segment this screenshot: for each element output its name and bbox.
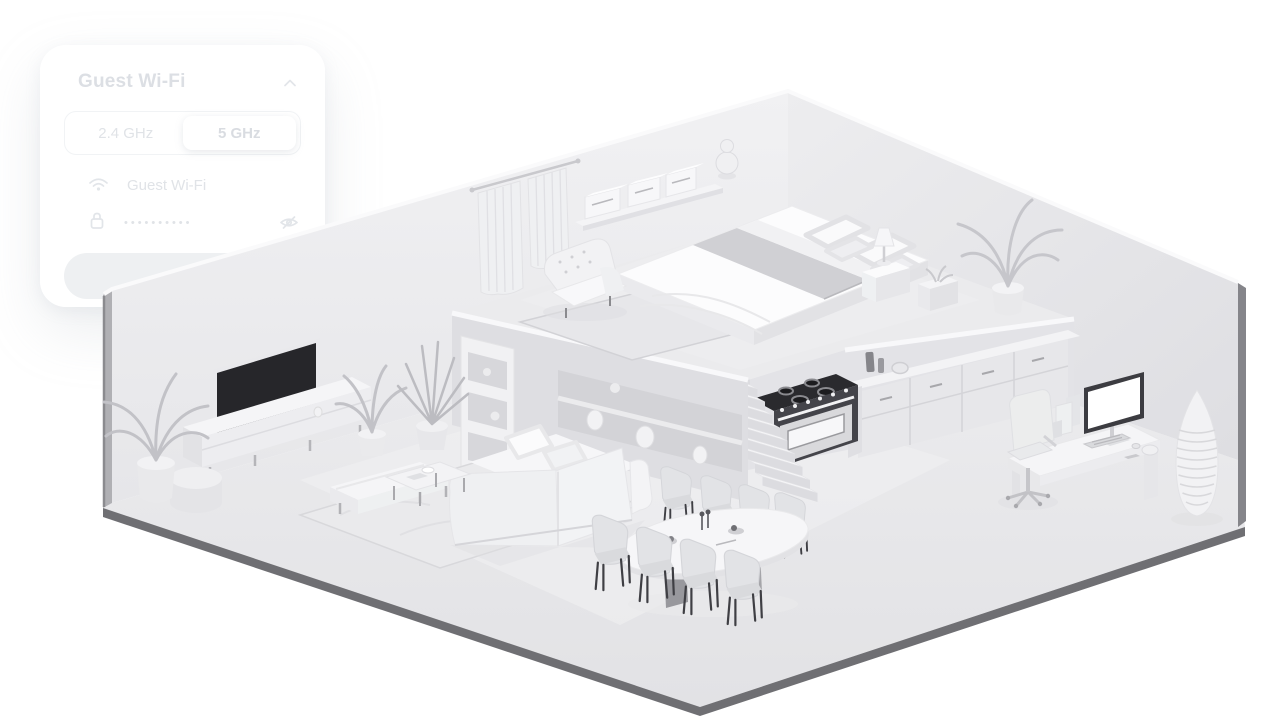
kitchen-stove (752, 374, 862, 469)
living-room-tv (213, 338, 320, 440)
office-desk (1008, 424, 1160, 506)
floor (103, 307, 1245, 707)
chevron-up-icon[interactable] (283, 78, 297, 87)
square-planter (918, 266, 958, 311)
password-masked[interactable]: •••••••••• (124, 217, 193, 229)
password-row: •••••••••• (88, 211, 299, 234)
loft-fascia (452, 313, 1074, 380)
save-button[interactable]: Save (64, 253, 301, 299)
dining-table (614, 498, 813, 617)
floor-vase (1171, 390, 1223, 526)
guest-wifi-card: Guest Wi-Fi 2.4 GHz 5 GHz Guest Wi-Fi (40, 45, 325, 307)
wall-shelf (575, 140, 738, 232)
oven-door (780, 404, 852, 464)
loft-structure (452, 215, 1074, 502)
coffee-table (386, 462, 470, 506)
floor-light-patch (300, 370, 950, 625)
bedroom-palm-plant (958, 200, 1062, 316)
storage-boxes (585, 163, 704, 219)
left-wall-edge (103, 290, 112, 508)
dining-chair (724, 550, 763, 625)
floor-edge-left (103, 508, 700, 716)
lock-icon (88, 211, 106, 234)
stove-front (774, 385, 858, 469)
oven-handle (778, 397, 854, 420)
mouse (1132, 444, 1140, 449)
floor-edge-right (700, 527, 1245, 716)
dining-chair (775, 493, 808, 558)
oven-window (788, 414, 844, 450)
loft-floor-light (520, 220, 980, 370)
bedroom-rug (520, 292, 750, 360)
tv-screen (217, 343, 316, 433)
built-in-bookcase (461, 336, 514, 492)
dining-area (592, 467, 813, 625)
bed-blanket (693, 228, 868, 299)
living-palm-plant (104, 374, 208, 503)
home-office (998, 372, 1160, 510)
dining-chair (661, 467, 694, 532)
dining-chair (592, 515, 631, 590)
counter-items (865, 352, 908, 374)
stove-cooktop (752, 374, 858, 411)
pouf (170, 467, 222, 513)
ssid-row: Guest Wi-Fi (88, 175, 299, 195)
stove-knobs (780, 389, 848, 413)
sofa (450, 426, 652, 566)
kitchen-cabinets (842, 330, 1080, 458)
office-chair (1006, 390, 1056, 509)
countertop (842, 330, 1080, 390)
table-lamp (874, 228, 894, 266)
dining-chair (636, 527, 675, 602)
chaise-bench (330, 462, 448, 514)
armchair (543, 239, 627, 321)
potted-plant-b (398, 342, 468, 450)
staircase (688, 356, 818, 503)
bedroom-loft (470, 140, 1063, 361)
kitchen (748, 319, 1080, 470)
living-room (104, 338, 652, 568)
chair-shadow (998, 494, 1058, 510)
loft-front-face (452, 313, 748, 502)
office-monitor (1084, 372, 1144, 446)
eye-off-icon[interactable] (279, 215, 299, 230)
sphere-decor (716, 140, 738, 180)
right-wall (788, 92, 1238, 460)
sofa-armrest (630, 460, 652, 514)
app-window: Guest Wi-Fi 2.4 GHz 5 GHz Guest Wi-Fi (0, 0, 1280, 720)
wifi-icon (88, 175, 109, 195)
ssid-value[interactable]: Guest Wi-Fi (127, 177, 206, 194)
curtains (470, 159, 581, 295)
dining-chair (680, 539, 719, 614)
band-option-5ghz[interactable]: 5 GHz (183, 116, 297, 150)
desk-accessories (1048, 394, 1158, 459)
band-selector: 2.4 GHz 5 GHz (64, 111, 301, 155)
loft-floor (452, 215, 1074, 380)
right-wall-edge (1238, 283, 1246, 527)
console-vase (314, 407, 322, 417)
dining-chair (701, 476, 734, 541)
nightstand (862, 262, 910, 302)
under-loft-cavity (748, 319, 1074, 470)
tabletop-items (659, 510, 744, 552)
dining-chair (739, 485, 772, 550)
potted-plant-a (336, 366, 406, 456)
table-book (406, 473, 428, 480)
area-rug (300, 455, 640, 568)
under-loft-shelves (558, 370, 742, 472)
bed-pillows (806, 217, 918, 278)
double-bed (618, 206, 928, 345)
panel-title: Guest Wi-Fi (78, 71, 186, 93)
card-header: Guest Wi-Fi (40, 45, 325, 93)
band-option-24ghz[interactable]: 2.4 GHz (69, 116, 183, 150)
keyboard (1084, 434, 1130, 448)
tv-console (183, 377, 371, 478)
